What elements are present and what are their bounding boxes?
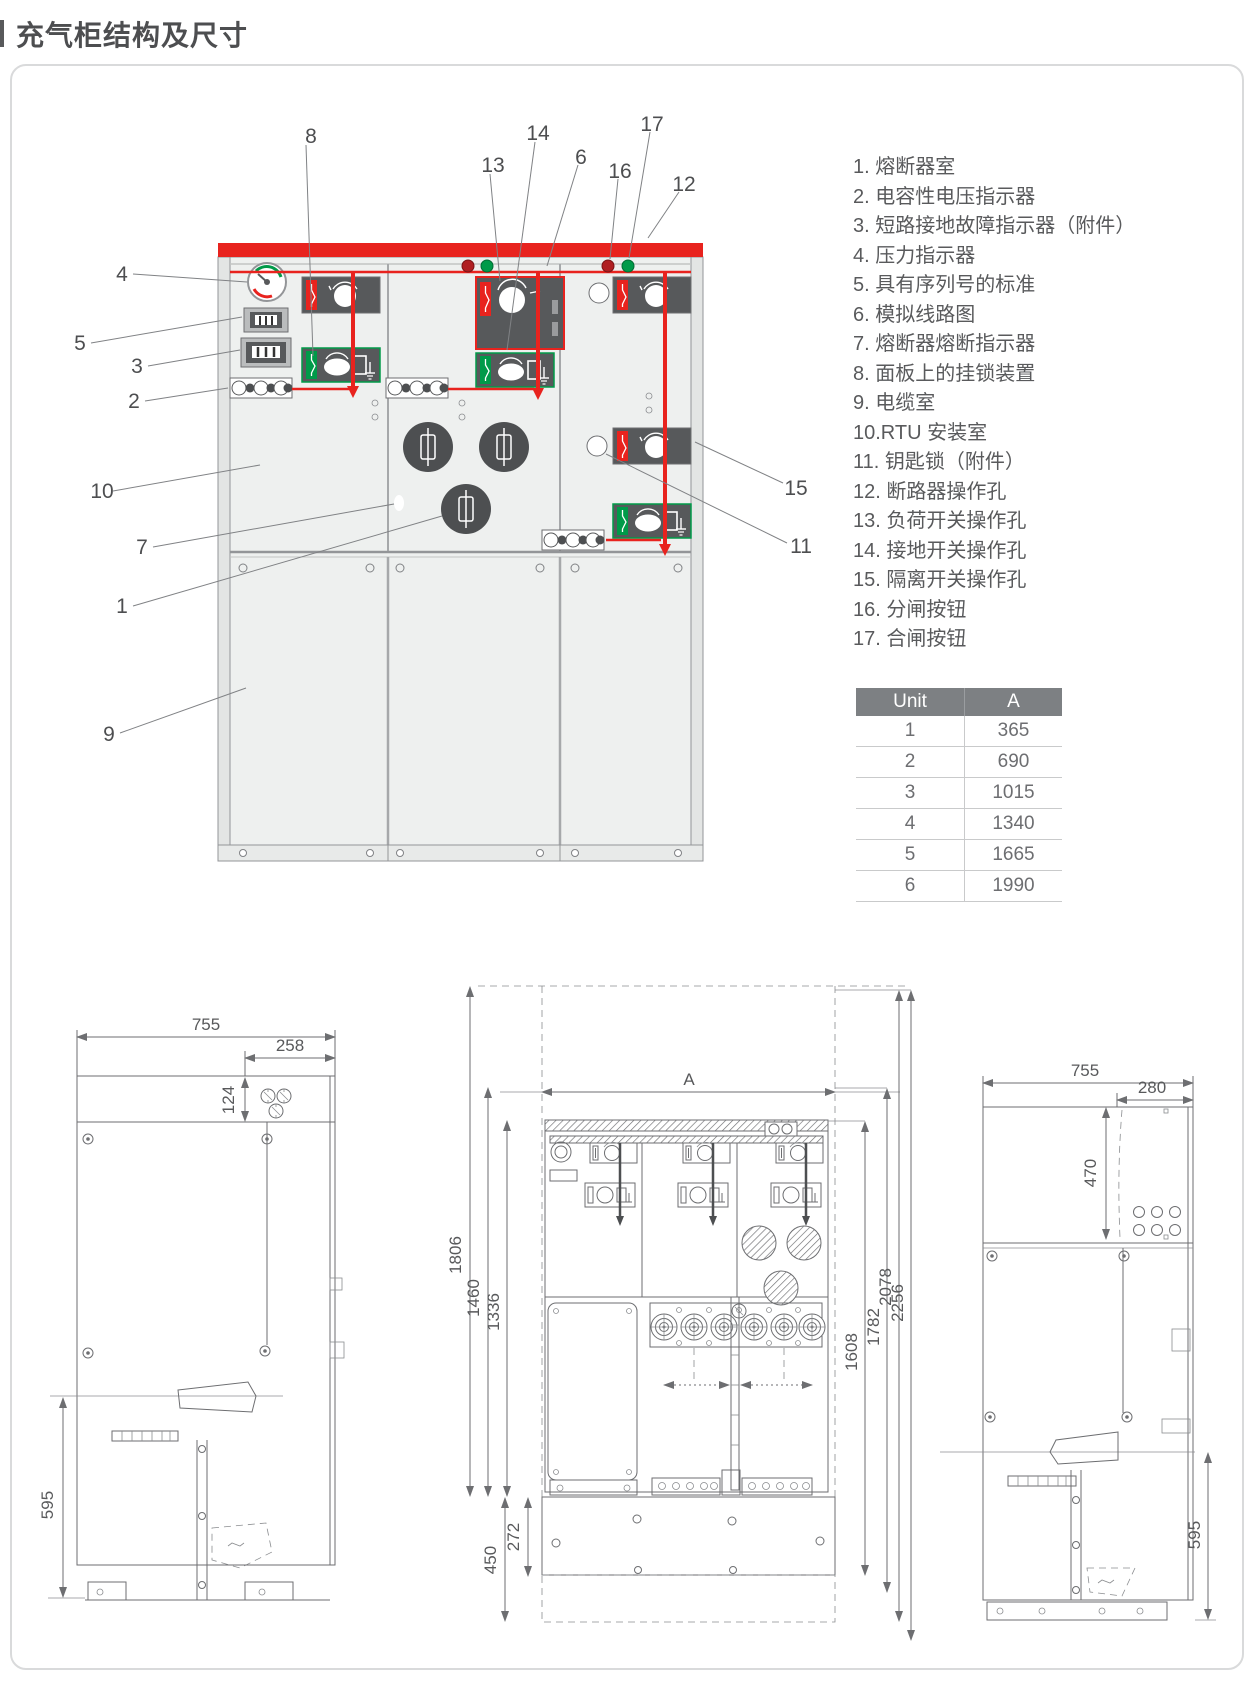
fault-indicator-plate <box>241 338 291 367</box>
callout-1: 1 <box>116 595 128 618</box>
dim-center-450: 450 <box>481 1546 500 1574</box>
callout-11: 11 <box>790 535 812 558</box>
diagram-canvas: 8 13 14 6 16 17 12 4 5 3 2 10 7 1 9 15 1… <box>0 0 1250 1700</box>
fuse-indicator-circle <box>479 422 529 472</box>
voltage-indicator-strip <box>542 530 605 550</box>
callout-9: 9 <box>103 723 115 746</box>
callout-15: 15 <box>784 477 807 500</box>
dim-center-2256: 2256 <box>888 1284 907 1322</box>
callout-5: 5 <box>74 332 86 355</box>
fuse-indicator-circle <box>441 484 491 534</box>
dim-left-258: 258 <box>276 1036 304 1055</box>
callout-8: 8 <box>305 125 317 148</box>
dim-center-1460: 1460 <box>464 1279 483 1317</box>
fuse-blown-indicator <box>394 495 404 511</box>
dim-right-470: 470 <box>1081 1159 1100 1187</box>
callout-17: 17 <box>640 113 663 136</box>
dim-center-1608: 1608 <box>842 1333 861 1371</box>
callout-10: 10 <box>90 480 113 503</box>
plinth <box>542 1497 835 1575</box>
floor-trench-dashed <box>542 1575 835 1622</box>
latch-mechanism <box>1050 1432 1118 1464</box>
key-lock-hole <box>587 436 607 456</box>
front-view-dimension-drawing: A 1806 1460 1336 <box>446 986 911 1640</box>
callout-7: 7 <box>136 536 148 559</box>
dim-center-1782: 1782 <box>864 1308 883 1346</box>
fuse-indicator-circle <box>403 422 453 472</box>
side-view-left-drawing: 755 258 124 595 <box>38 1015 344 1600</box>
voltage-indicator-strip <box>386 378 449 398</box>
dim-right-755: 755 <box>1071 1061 1099 1080</box>
callout-3: 3 <box>131 355 143 378</box>
gland-plate-holes <box>1134 1207 1181 1236</box>
ladder-strip <box>112 1431 178 1441</box>
rtu-door <box>548 1303 637 1480</box>
circuit-breaker-module <box>476 277 564 349</box>
cabinet-base <box>218 845 703 861</box>
voltage-indicator-strip <box>230 378 293 398</box>
ladder-strip <box>1008 1476 1076 1486</box>
serial-nameplate <box>244 308 288 332</box>
dashed-cable-region <box>212 1523 272 1568</box>
side-view-right-drawing: 755 280 470 595 <box>940 1061 1216 1620</box>
dim-right-280: 280 <box>1138 1078 1166 1097</box>
dim-left-595: 595 <box>38 1491 57 1519</box>
disconnector-switch-module <box>613 428 691 464</box>
dim-center-1336: 1336 <box>484 1293 503 1331</box>
callout-6: 6 <box>575 146 587 169</box>
callout-12: 12 <box>672 173 695 196</box>
latch-mechanism <box>178 1382 256 1412</box>
load-switch-module <box>302 277 380 313</box>
dim-center-272: 272 <box>504 1523 523 1551</box>
dim-left-755: 755 <box>192 1015 220 1034</box>
pressure-gauge <box>248 263 286 301</box>
callout-2: 2 <box>128 390 140 413</box>
dim-center-A: A <box>683 1070 695 1089</box>
callout-13: 13 <box>481 154 504 177</box>
callout-14: 14 <box>526 122 550 145</box>
left-rail <box>218 257 230 861</box>
dim-center-1806: 1806 <box>446 1236 465 1274</box>
main-cabinet-diagram: 8 13 14 6 16 17 12 4 5 3 2 10 7 1 9 15 1… <box>74 113 812 861</box>
callout-16: 16 <box>608 160 631 183</box>
earthing-switch-module <box>613 504 691 538</box>
dim-right-595: 595 <box>1185 1521 1204 1549</box>
dim-left-124: 124 <box>219 1086 238 1114</box>
earthing-switch-module <box>476 353 554 387</box>
callout-4: 4 <box>116 263 128 286</box>
right-rail <box>691 257 703 861</box>
earthing-switch-module <box>302 348 380 382</box>
disconnector-switch-module <box>613 277 691 313</box>
key-lock-hole <box>589 283 609 303</box>
